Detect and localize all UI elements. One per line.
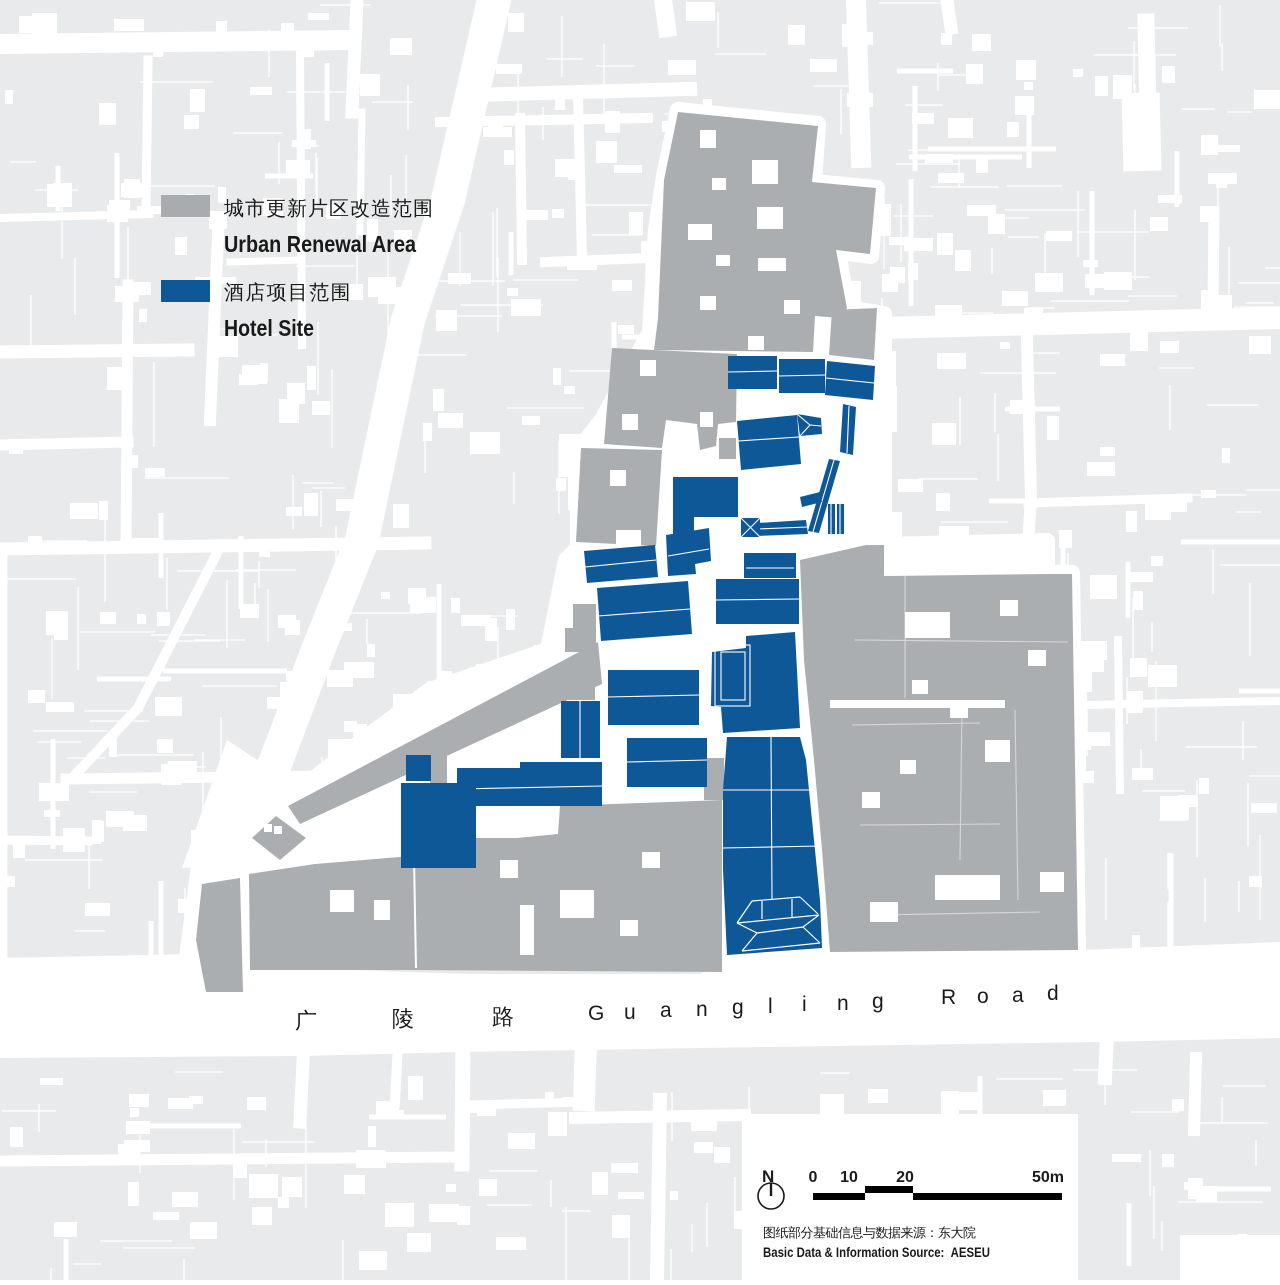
svg-text:20: 20 [896, 1169, 914, 1186]
svg-text:l: l [768, 995, 773, 1018]
svg-text:50m: 50m [1032, 1169, 1064, 1186]
svg-text:n: n [696, 998, 708, 1021]
svg-text:Hotel Site: Hotel Site [224, 315, 314, 341]
svg-text:u: u [624, 1001, 636, 1024]
svg-text:g: g [872, 990, 884, 1013]
svg-text:d: d [1047, 982, 1059, 1005]
svg-text:o: o [977, 985, 989, 1008]
svg-text:i: i [802, 993, 807, 1016]
svg-text:10: 10 [840, 1169, 858, 1186]
svg-text:Basic Data & Information Sourc: Basic Data & Information Source: AESEU [763, 1244, 990, 1260]
svg-text:G: G [588, 1002, 604, 1025]
svg-text:0: 0 [809, 1169, 818, 1186]
svg-text:Urban Renewal Area: Urban Renewal Area [224, 231, 416, 257]
svg-text:a: a [1012, 984, 1024, 1007]
svg-text:n: n [837, 992, 849, 1015]
svg-text:g: g [732, 996, 744, 1019]
svg-text:a: a [660, 999, 672, 1022]
svg-text:R: R [941, 986, 956, 1009]
